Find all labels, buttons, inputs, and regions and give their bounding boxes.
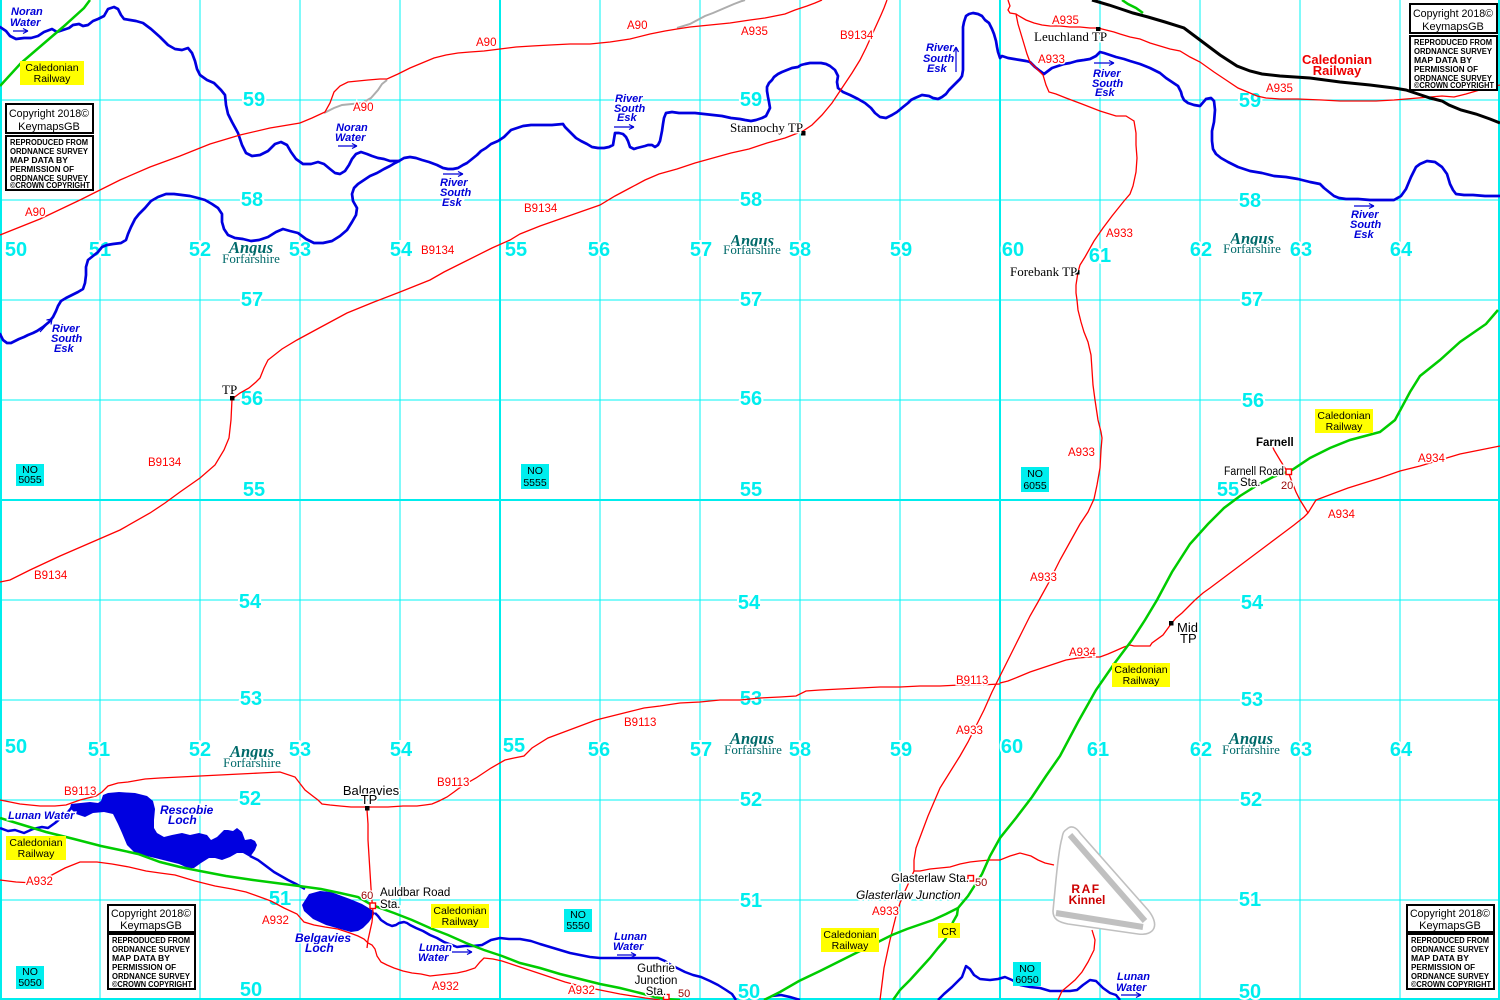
svg-text:A934: A934 — [1418, 453, 1445, 465]
svg-text:62: 62 — [1190, 739, 1212, 761]
svg-text:©CROWN COPYRIGHT: ©CROWN COPYRIGHT — [1414, 81, 1494, 90]
svg-text:NO: NO — [1027, 468, 1043, 480]
svg-text:A932: A932 — [432, 981, 459, 993]
svg-text:Stannochy TP: Stannochy TP — [730, 120, 803, 135]
svg-text:A933: A933 — [1030, 572, 1057, 584]
svg-text:Sta.: Sta. — [1240, 477, 1260, 489]
svg-text:63: 63 — [1290, 739, 1312, 761]
svg-text:52: 52 — [189, 739, 211, 761]
svg-text:60: 60 — [1001, 736, 1023, 758]
svg-text:53: 53 — [1241, 689, 1263, 711]
svg-text:51: 51 — [269, 888, 291, 910]
svg-text:64: 64 — [1390, 239, 1413, 261]
svg-text:Esk: Esk — [442, 197, 462, 209]
svg-text:KeymapsGB: KeymapsGB — [1419, 920, 1481, 932]
svg-text:61: 61 — [1087, 739, 1109, 761]
svg-text:55: 55 — [740, 479, 762, 501]
svg-text:Forfarshire: Forfarshire — [723, 242, 781, 257]
svg-text:B9134: B9134 — [421, 245, 455, 257]
svg-text:63: 63 — [1290, 239, 1312, 261]
svg-text:Lunan Water: Lunan Water — [8, 810, 75, 822]
svg-text:Farnell: Farnell — [1256, 437, 1294, 449]
svg-text:52: 52 — [239, 788, 261, 810]
svg-text:REPRODUCED FROM: REPRODUCED FROM — [10, 138, 88, 147]
svg-text:PERMISSION OF: PERMISSION OF — [1414, 65, 1478, 74]
svg-text:Railway: Railway — [34, 73, 72, 85]
svg-text:54: 54 — [239, 591, 262, 613]
svg-text:52: 52 — [1240, 789, 1262, 811]
svg-text:ORDNANCE SURVEY: ORDNANCE SURVEY — [10, 147, 89, 156]
svg-text:Esk: Esk — [927, 63, 947, 75]
svg-text:Esk: Esk — [1095, 87, 1115, 99]
svg-text:A933: A933 — [872, 906, 899, 918]
svg-text:B9113: B9113 — [956, 675, 988, 687]
svg-text:Water: Water — [418, 952, 449, 964]
svg-text:A933: A933 — [1068, 447, 1095, 459]
svg-text:50: 50 — [975, 877, 987, 889]
svg-text:57: 57 — [241, 289, 263, 311]
svg-text:Water: Water — [335, 132, 366, 144]
svg-text:A932: A932 — [568, 985, 595, 997]
svg-text:PERMISSION OF: PERMISSION OF — [10, 165, 74, 174]
svg-text:ORDNANCE SURVEY: ORDNANCE SURVEY — [1411, 945, 1490, 954]
svg-text:ORDNANCE SURVEY: ORDNANCE SURVEY — [112, 945, 191, 954]
svg-text:MAP DATA BY: MAP DATA BY — [112, 954, 171, 963]
svg-text:57: 57 — [740, 289, 762, 311]
svg-text:54: 54 — [738, 592, 761, 614]
svg-text:59: 59 — [243, 89, 265, 111]
svg-text:62: 62 — [1190, 239, 1212, 261]
svg-text:Railway: Railway — [1313, 63, 1362, 78]
svg-text:Forfarshire: Forfarshire — [724, 742, 782, 757]
svg-text:CR: CR — [941, 926, 957, 938]
svg-text:A90: A90 — [627, 20, 647, 32]
svg-text:NO: NO — [527, 465, 543, 477]
svg-text:50: 50 — [1239, 981, 1261, 1000]
svg-text:ORDNANCE SURVEY: ORDNANCE SURVEY — [1414, 47, 1493, 56]
svg-text:B9134: B9134 — [34, 570, 68, 582]
svg-text:50: 50 — [5, 736, 27, 758]
svg-text:MAP DATA BY: MAP DATA BY — [10, 156, 69, 165]
svg-text:MAP DATA BY: MAP DATA BY — [1411, 954, 1470, 963]
svg-text:B9134: B9134 — [148, 457, 182, 469]
svg-text:58: 58 — [241, 189, 263, 211]
svg-text:51: 51 — [740, 890, 762, 912]
svg-text:54: 54 — [1241, 592, 1264, 614]
svg-text:B9113: B9113 — [437, 777, 469, 789]
svg-text:6050: 6050 — [1015, 974, 1039, 986]
svg-text:B9134: B9134 — [840, 30, 874, 42]
svg-text:Water: Water — [10, 17, 41, 29]
svg-text:61: 61 — [1089, 245, 1111, 267]
svg-text:Sta.: Sta. — [380, 899, 400, 911]
svg-text:A932: A932 — [26, 876, 53, 888]
svg-text:A933: A933 — [1038, 54, 1065, 66]
svg-text:PERMISSION OF: PERMISSION OF — [1411, 963, 1475, 972]
svg-text:A90: A90 — [353, 102, 373, 114]
svg-text:B9134: B9134 — [524, 203, 558, 215]
svg-text:Forfarshire: Forfarshire — [1222, 742, 1280, 757]
svg-text:Railway: Railway — [18, 848, 56, 860]
svg-text:Copyright 2018©: Copyright 2018© — [1413, 8, 1493, 20]
svg-text:TP: TP — [222, 382, 237, 397]
svg-text:51: 51 — [1239, 889, 1261, 911]
svg-text:50: 50 — [678, 988, 690, 1000]
svg-text:A933: A933 — [1106, 228, 1133, 240]
svg-text:58: 58 — [740, 189, 762, 211]
svg-text:59: 59 — [890, 739, 912, 761]
svg-text:56: 56 — [588, 239, 610, 261]
svg-text:58: 58 — [789, 739, 811, 761]
svg-text:©CROWN COPYRIGHT: ©CROWN COPYRIGHT — [1411, 980, 1491, 989]
svg-text:5555: 5555 — [523, 477, 547, 489]
svg-text:A935: A935 — [1052, 15, 1079, 27]
svg-text:KeymapsGB: KeymapsGB — [18, 121, 80, 133]
svg-text:54: 54 — [390, 739, 413, 761]
svg-text:57: 57 — [690, 239, 712, 261]
svg-text:50: 50 — [240, 979, 262, 1000]
svg-text:Copyright 2018©: Copyright 2018© — [111, 908, 191, 920]
svg-text:Leuchland TP: Leuchland TP — [1034, 29, 1107, 44]
svg-text:Railway: Railway — [832, 940, 870, 952]
svg-text:TP: TP — [1180, 631, 1197, 646]
svg-text:A935: A935 — [1266, 83, 1293, 95]
svg-text:64: 64 — [1390, 739, 1413, 761]
svg-text:51: 51 — [88, 739, 110, 761]
svg-text:59: 59 — [890, 239, 912, 261]
svg-text:Copyright 2018©: Copyright 2018© — [9, 108, 89, 120]
svg-text:Copyright 2018©: Copyright 2018© — [1410, 908, 1490, 920]
svg-text:A934: A934 — [1069, 647, 1096, 659]
svg-text:56: 56 — [588, 739, 610, 761]
svg-text:60: 60 — [1002, 239, 1024, 261]
svg-text:53: 53 — [289, 239, 311, 261]
svg-text:53: 53 — [240, 688, 262, 710]
svg-text:Auldbar Road: Auldbar Road — [380, 887, 450, 899]
svg-text:A90: A90 — [476, 37, 496, 49]
svg-text:REPRODUCED FROM: REPRODUCED FROM — [1414, 38, 1492, 47]
svg-text:Water: Water — [1116, 982, 1147, 994]
svg-text:REPRODUCED FROM: REPRODUCED FROM — [112, 936, 190, 945]
svg-text:Water: Water — [613, 941, 644, 953]
svg-text:Esk: Esk — [1354, 229, 1374, 241]
svg-text:Kinnel: Kinnel — [1069, 893, 1106, 907]
svg-text:55: 55 — [243, 479, 265, 501]
svg-text:20: 20 — [1281, 480, 1293, 492]
svg-text:Esk: Esk — [617, 112, 637, 124]
svg-text:PERMISSION OF: PERMISSION OF — [112, 963, 176, 972]
svg-text:60: 60 — [361, 890, 373, 902]
svg-text:Glasterlaw Junction: Glasterlaw Junction — [856, 888, 961, 902]
svg-text:5050: 5050 — [18, 977, 42, 989]
svg-text:59: 59 — [740, 89, 762, 111]
svg-text:52: 52 — [740, 789, 762, 811]
svg-text:Esk: Esk — [54, 343, 74, 355]
svg-text:Loch: Loch — [168, 813, 197, 827]
svg-text:A935: A935 — [741, 26, 768, 38]
svg-text:56: 56 — [1242, 390, 1264, 412]
svg-text:TP: TP — [361, 792, 378, 807]
svg-text:5055: 5055 — [18, 474, 42, 486]
svg-text:©CROWN COPYRIGHT: ©CROWN COPYRIGHT — [112, 980, 192, 989]
svg-text:B9113: B9113 — [64, 786, 96, 798]
svg-text:Loch: Loch — [305, 941, 334, 955]
svg-text:58: 58 — [789, 239, 811, 261]
svg-text:Guthrie: Guthrie — [637, 963, 675, 975]
svg-text:Forfarshire: Forfarshire — [1223, 241, 1281, 256]
svg-text:57: 57 — [1241, 289, 1263, 311]
svg-text:50: 50 — [738, 981, 760, 1000]
svg-text:Forfarshire: Forfarshire — [222, 251, 280, 266]
svg-text:56: 56 — [740, 388, 762, 410]
svg-text:Forfarshire: Forfarshire — [223, 755, 281, 770]
svg-text:B9113: B9113 — [624, 717, 656, 729]
svg-text:58: 58 — [1239, 190, 1261, 212]
svg-text:A933: A933 — [956, 725, 983, 737]
svg-text:Railway: Railway — [1326, 421, 1364, 433]
svg-text:55: 55 — [503, 735, 525, 757]
svg-text:Forebank TP: Forebank TP — [1010, 264, 1077, 279]
svg-text:Glasterlaw Sta.: Glasterlaw Sta. — [891, 873, 969, 885]
svg-text:6055: 6055 — [1023, 480, 1047, 492]
svg-text:53: 53 — [289, 739, 311, 761]
svg-text:©CROWN COPYRIGHT: ©CROWN COPYRIGHT — [10, 181, 90, 190]
svg-text:Railway: Railway — [442, 916, 480, 928]
svg-text:KeymapsGB: KeymapsGB — [1422, 21, 1484, 33]
svg-text:A934: A934 — [1328, 509, 1355, 521]
svg-text:57: 57 — [690, 739, 712, 761]
svg-text:52: 52 — [189, 239, 211, 261]
svg-text:Sta.: Sta. — [646, 986, 666, 998]
svg-text:KeymapsGB: KeymapsGB — [120, 920, 182, 932]
svg-text:50: 50 — [5, 239, 27, 261]
svg-text:5550: 5550 — [566, 920, 590, 932]
svg-text:A932: A932 — [262, 915, 289, 927]
svg-text:A90: A90 — [25, 207, 45, 219]
svg-text:54: 54 — [390, 239, 413, 261]
svg-text:Railway: Railway — [1123, 675, 1161, 687]
svg-text:55: 55 — [505, 239, 527, 261]
svg-text:REPRODUCED FROM: REPRODUCED FROM — [1411, 936, 1489, 945]
svg-text:MAP DATA BY: MAP DATA BY — [1414, 56, 1473, 65]
